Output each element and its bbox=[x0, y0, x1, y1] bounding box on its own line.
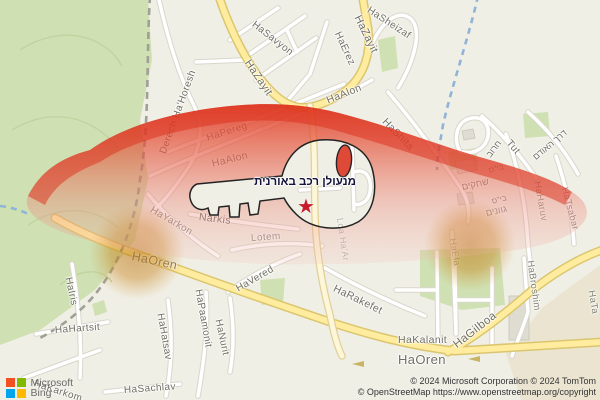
star-icon[interactable]: ★ bbox=[297, 197, 315, 217]
logo-square-yellow bbox=[17, 389, 26, 398]
business-name-label: מנעולן רכב באורנית bbox=[238, 176, 372, 188]
logo-text: Microsoft Bing bbox=[31, 378, 74, 398]
attribution-osm-link[interactable]: © OpenStreetMap https://www.openstreetma… bbox=[358, 387, 596, 398]
map-canvas[interactable]: HaSavyonHaZayitHaZayitHaSheizafDerech Ha… bbox=[0, 0, 600, 400]
attribution-copyright: © 2024 Microsoft Corporation © 2024 TomT… bbox=[358, 376, 596, 387]
bing-logo[interactable]: Microsoft Bing bbox=[6, 378, 73, 398]
logo-square-red bbox=[6, 378, 15, 387]
logo-product: Bing bbox=[31, 388, 74, 398]
map-attribution: © 2024 Microsoft Corporation © 2024 TomT… bbox=[358, 376, 596, 398]
logo-square-green bbox=[17, 378, 26, 387]
microsoft-logo-icon bbox=[6, 378, 26, 398]
oneway-arrows bbox=[352, 356, 480, 367]
logo-square-blue bbox=[6, 389, 15, 398]
